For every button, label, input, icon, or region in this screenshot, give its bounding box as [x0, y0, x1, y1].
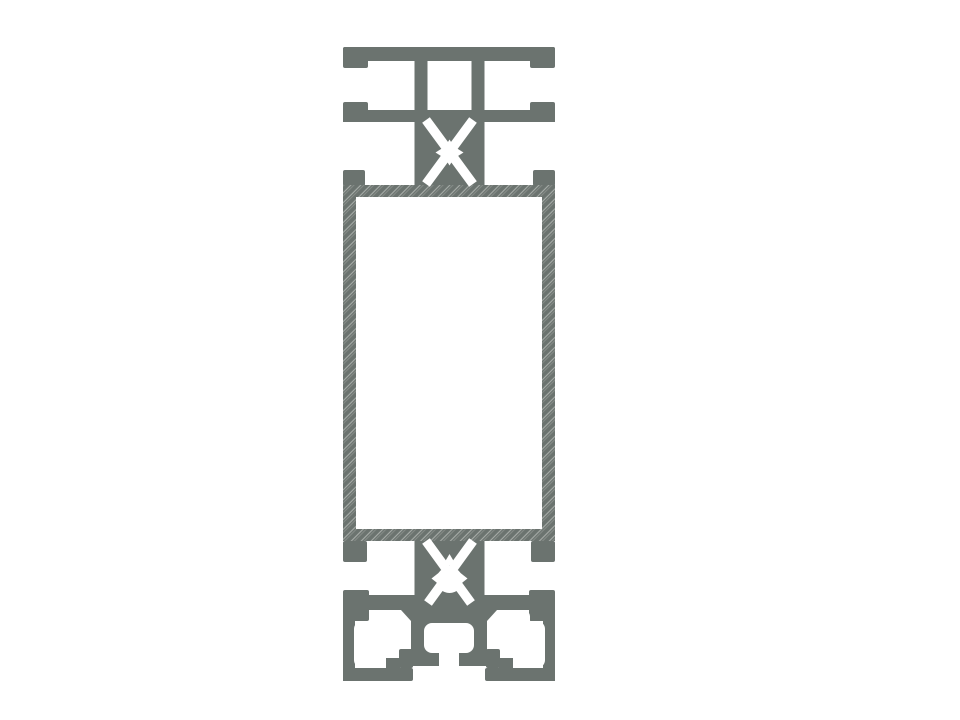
drawing-canvas: [0, 0, 960, 720]
top-flange: [343, 47, 555, 61]
base-foot-step-right-low: [499, 658, 513, 668]
top-arm-bar: [343, 110, 555, 122]
base-center-chamfer-left: [401, 610, 411, 621]
tube-top-hook-right: [533, 170, 555, 186]
base-center-chamfer-right: [487, 610, 497, 621]
base-foot-step-left-high: [399, 649, 413, 668]
tube-wall-right: [542, 185, 555, 541]
base-cavity-left-notch: [369, 611, 391, 627]
profile-cross-section-drawing: [0, 0, 960, 720]
base-cavity-right-notch: [508, 611, 530, 627]
base-central-throat: [439, 650, 459, 672]
tube-wall-bottom: [343, 529, 555, 541]
top-flange-hook-right: [530, 47, 555, 68]
top-flange-hook-left: [343, 47, 368, 68]
tube-wall-left: [343, 185, 356, 541]
tube-wall-top: [343, 185, 555, 197]
base-foot-step-left-low: [386, 658, 400, 668]
tube-inner-cavity: [356, 197, 542, 529]
tube-bottom-finger-left: [343, 541, 367, 562]
top-side-block-right: [530, 102, 555, 122]
bottom-arm-bar: [343, 595, 555, 610]
tube-bottom-finger-right: [531, 541, 555, 562]
base-foot-step-right-high: [486, 649, 500, 668]
profile-cutouts: [354, 61, 545, 672]
base-central-cavity: [424, 623, 474, 653]
top-square-cavity: [428, 61, 472, 110]
base-foot-right: [485, 668, 555, 681]
base-foot-left: [343, 668, 413, 681]
tube-top-hook-left: [343, 170, 365, 186]
top-side-block-left: [343, 102, 368, 122]
